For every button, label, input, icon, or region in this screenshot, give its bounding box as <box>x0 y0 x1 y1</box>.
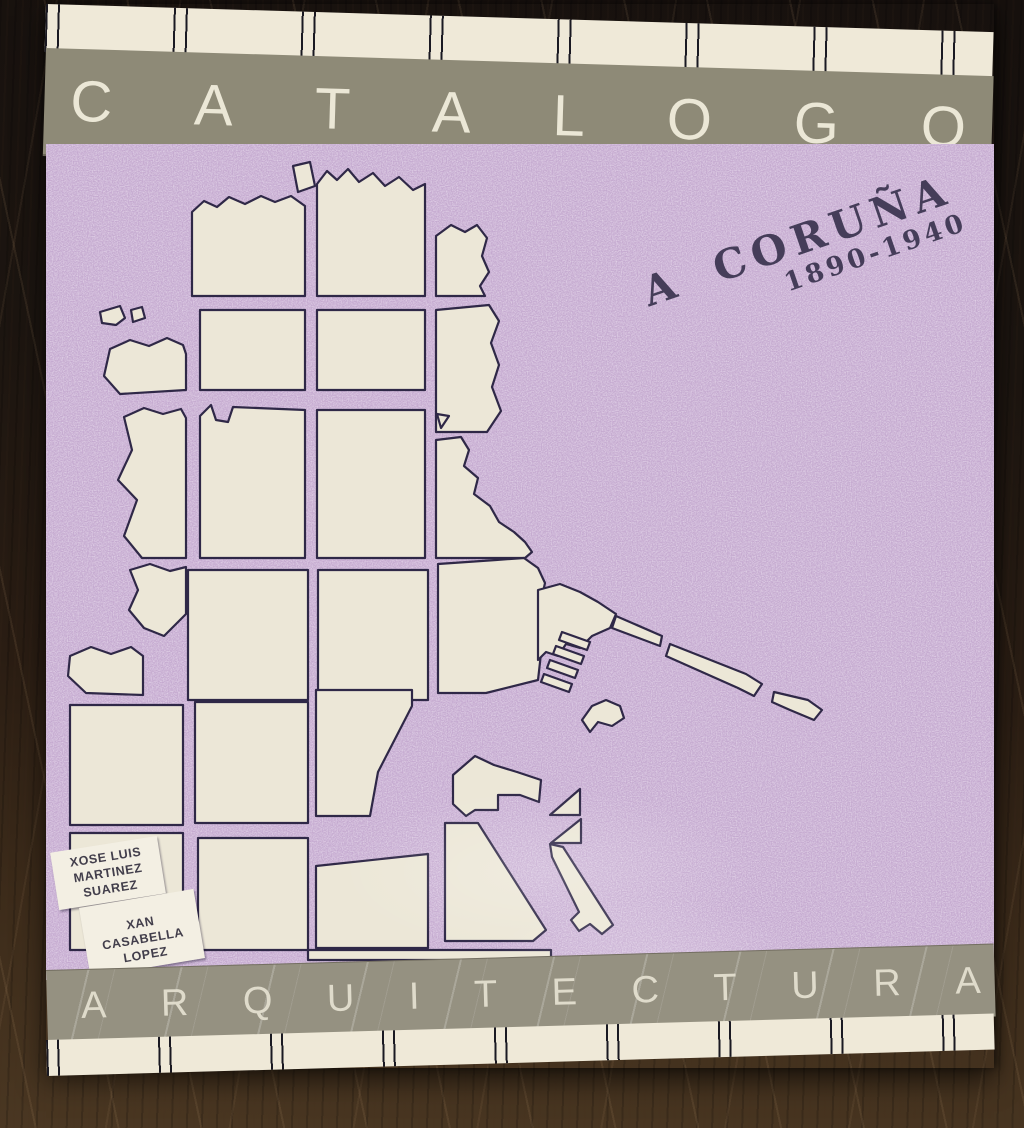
map-block <box>317 310 425 390</box>
photo-scene: CATALOGO <box>0 0 1024 1128</box>
map-block <box>118 408 186 558</box>
map-block <box>68 647 143 695</box>
map-block <box>317 169 425 296</box>
map-block <box>438 558 545 693</box>
map-block <box>104 338 186 394</box>
cover-purple-field: A CORUÑA 1890-1940 XOSE LUIS MARTINEZ SU… <box>46 144 994 980</box>
map-block <box>318 570 428 700</box>
map-block <box>198 838 308 950</box>
map-block <box>293 162 315 192</box>
book-cover: CATALOGO <box>46 4 994 1068</box>
map-block <box>316 854 428 948</box>
map-block <box>200 310 305 390</box>
map-block <box>317 410 425 558</box>
map-block <box>188 570 308 700</box>
map-block <box>200 405 305 558</box>
map-block <box>70 705 183 825</box>
map-block <box>195 702 308 823</box>
map-islet <box>131 307 145 322</box>
map-block <box>436 305 501 432</box>
arquitectura-text: ARQUITECTURA <box>47 962 996 1026</box>
map-block <box>192 196 305 296</box>
map-block <box>436 225 489 296</box>
